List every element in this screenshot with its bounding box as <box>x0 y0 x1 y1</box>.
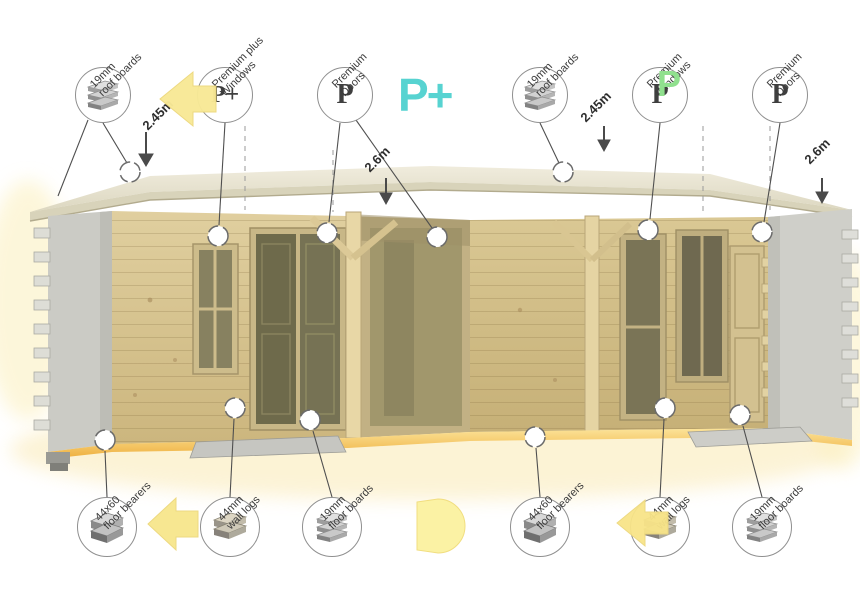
green-p-brand-mark: P <box>657 66 681 102</box>
right-side-wall <box>768 209 858 440</box>
right-door <box>730 246 764 422</box>
infographic-canvas: P+ P P P 19mm roof boards Premium plus W… <box>0 0 860 600</box>
premium-plus-brand-mark: P+ <box>398 72 452 118</box>
right-window-b <box>676 230 728 382</box>
left-window <box>193 244 238 374</box>
left-door <box>250 228 346 430</box>
right-window-a <box>620 234 666 420</box>
right-wing-wall <box>470 217 776 432</box>
